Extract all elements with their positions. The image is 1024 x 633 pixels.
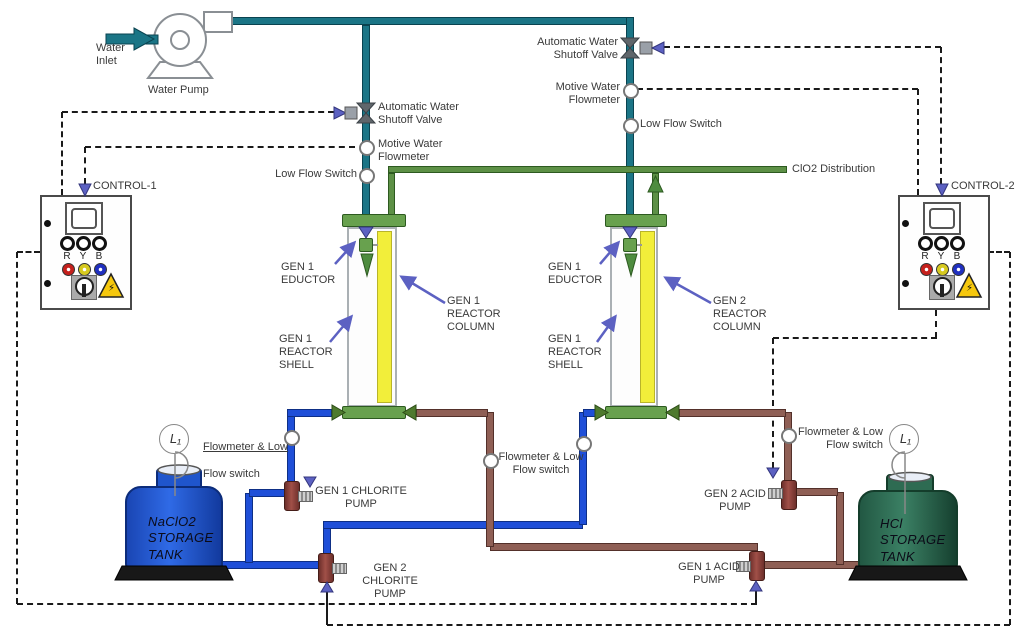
water-inlet-label: Water Inlet [96,42,144,68]
control2-screen-inner [929,208,955,229]
control1-left-stub [17,251,40,253]
phase-b-label: B [91,251,107,262]
chlorite-tank-outlet-pipe [222,561,322,569]
gen1-shell-label: GEN 1 REACTOR SHELL [279,333,343,373]
control1-valve-signal-line [62,111,334,113]
gen2-chlorite-transfer-pipe [323,521,583,529]
control2-indicator-r [918,236,933,251]
control1-label: CONTROL-1 [93,180,165,193]
flow-label-line2: Flow switch [203,468,260,480]
gen2-chlorite-feed-pipe [583,409,597,417]
control2-rotary-handle [940,284,944,297]
phase-b-label: B [949,251,965,262]
control1-indicator-b [92,236,107,251]
control1-indicator-r [60,236,75,251]
gen1-acid-transfer-pipe [490,543,758,551]
control1-flowmeter-signal-drop [84,147,86,184]
gen1-clo2-riser [388,173,395,215]
gen1-eductor-label: GEN 1 EDUCTOR [281,261,343,287]
control1-valve-signal-drop [61,112,63,195]
gen1-motive-water-pipe [362,25,370,229]
control1-screen-inner [71,208,97,229]
gen2-acid-pump-coupling [768,488,783,499]
control2-screw-bottom [902,280,909,287]
control2-right-stub [988,251,1010,253]
gen2-chlorite-flow-switch [576,436,592,452]
gen2-acid-flow-switch-label: Flowmeter & Low Flow switch [795,426,883,452]
water-pump-symbol [148,12,232,78]
bottom-signal-line-2 [327,624,1010,626]
gen1-shutoff-valve-label: Automatic Water Shutoff Valve [378,101,478,127]
control2-flowmeter-signal-line [637,88,918,90]
gen2-chlorite-pump-arrow [321,582,333,592]
gen2-eductor [623,238,637,252]
bottom-signal-line-1 [17,603,757,605]
gen1-low-flow-switch-label: Low Flow Switch [262,168,357,181]
control2-flowmeter-signal-drop [917,89,919,195]
acid-tank-level-indicator: L₁ [889,424,919,454]
gen2-column-label: GEN 2 REACTOR COLUMN [713,295,781,335]
gen2-low-flow-switch [623,118,639,134]
control1-hazard-bolt: ⚡ [104,283,119,294]
gen1-motive-flowmeter-label: Motive Water Flowmeter [378,138,468,164]
gen1-column-label: GEN 1 REACTOR COLUMN [447,295,515,335]
phase-r-label: R [917,251,933,262]
clo2-distribution-label: ClO2 Distribution [792,163,902,176]
gen2-reactor-column [640,231,655,403]
clo2-distribution-pipe [388,166,787,173]
gen1-chlorite-suction-pipe [249,489,286,497]
gen1-top-header [342,214,406,227]
gen2-acid-signal-drop [772,338,774,468]
gen1-reactor-column [377,231,392,403]
control2-label: CONTROL-2 [951,180,1023,193]
gen2-low-flow-switch-label: Low Flow Switch [640,118,735,131]
gen2-top-header [605,214,667,227]
gen2-shutoff-valve-label: Automatic Water Shutoff Valve [526,36,618,62]
acid-tank-label: HCl STORAGE TANK [880,516,956,565]
gen1-low-flow-switch [359,168,375,184]
gen2-chlorite-pump-label: GEN 2 CHLORITE PUMP [346,562,434,602]
gen2-acid-pump [781,480,797,510]
gen2-motive-flowmeter-label: Motive Water Flowmeter [532,81,620,107]
gen1-chlorite-feed-pipe [287,409,332,417]
gen2-acid-pump-label: GEN 2 ACID PUMP [700,488,770,514]
chlorite-tank-level-indicator: L₁ [159,424,189,454]
gen2-eductor-connector [637,244,642,246]
control2-bottom-drop [935,310,937,338]
clo2-generation-diagram: L₁ L₁ R Y B ⚡ R Y B ⚡ [0,0,1024,633]
control2-indicator-b [950,236,965,251]
gen2-acid-signal-line [773,337,937,339]
gen2-clo2-riser [652,173,659,215]
control1-screw-top [44,220,51,227]
phase-r-label: R [59,251,75,262]
control1-screw-bottom [44,280,51,287]
control1-left-riser [16,252,18,604]
control2-indicator-y [934,236,949,251]
gen1-acid-pump-arrow [750,581,762,591]
gen1-motive-flowmeter [359,140,375,156]
gen1-acid-pump-signal-stub [755,591,757,604]
control2-right-riser [1009,252,1011,625]
phase-y-label: Y [75,251,91,262]
gen1-acid-feed-riser [486,412,494,547]
gen2-bottom-header [605,406,667,419]
flow-label-line1: Flowmeter & Low [203,441,288,453]
control1-flowmeter-signal-line [85,146,355,148]
gen2-column-leader [666,278,711,303]
gen1-bottom-header [342,406,406,419]
gen2-acid-suction-riser [836,492,844,565]
gen2-chlorite-pump-coupling [332,563,347,574]
gen1-acid-pump [749,551,765,581]
control2-valve-signal-drop [940,47,942,184]
water-main-header-pipe [231,17,634,25]
gen1-chlorite-flow-switch-label: Flowmeter & Low Flow switch [203,428,293,481]
level-indicator-label: L₁ [890,431,921,446]
control2-screw-top [902,220,909,227]
gen1-column-leader [402,277,445,303]
gen2-acid-discharge-riser [784,412,792,482]
gen2-shell-label: GEN 1 REACTOR SHELL [548,333,612,373]
control1-rotary-handle [82,284,86,297]
gen1-chlorite-pump-label: GEN 1 CHLORITE PUMP [313,485,409,511]
control2-hazard-bolt: ⚡ [962,283,977,294]
control1-indicator-y [76,236,91,251]
gen2-chlorite-pump-signal-stub [326,592,328,625]
gen1-chlorite-suction-riser [245,493,253,563]
gen2-acid-inlet-arrow [666,405,679,420]
gen2-acid-suction-pipe [795,488,838,496]
gen1-eductor [359,238,373,252]
control2-valve-signal-line [664,46,941,48]
phase-y-label: Y [933,251,949,262]
chlorite-tank-label: NaClO2 STORAGE TANK [148,514,234,563]
water-pump-label: Water Pump [148,84,228,97]
gen2-acid-feed-pipe [679,409,786,417]
gen1-acid-feed-pipe [416,409,488,417]
gen1-acid-flow-switch [483,453,499,469]
gen2-eductor-label: GEN 1 EDUCTOR [548,261,610,287]
gen1-acid-pump-label: GEN 1 ACID PUMP [676,561,742,587]
center-flow-switch-label: Flowmeter & Low Flow switch [498,451,584,477]
gen2-motive-flowmeter [623,83,639,99]
gen2-acid-pump-arrow [767,468,779,478]
level-indicator-label: L₁ [160,431,191,446]
gen1-chlorite-pump-coupling [298,491,313,502]
acid-tank-outlet-pipe [762,561,861,569]
gen1-eductor-connector [373,244,378,246]
